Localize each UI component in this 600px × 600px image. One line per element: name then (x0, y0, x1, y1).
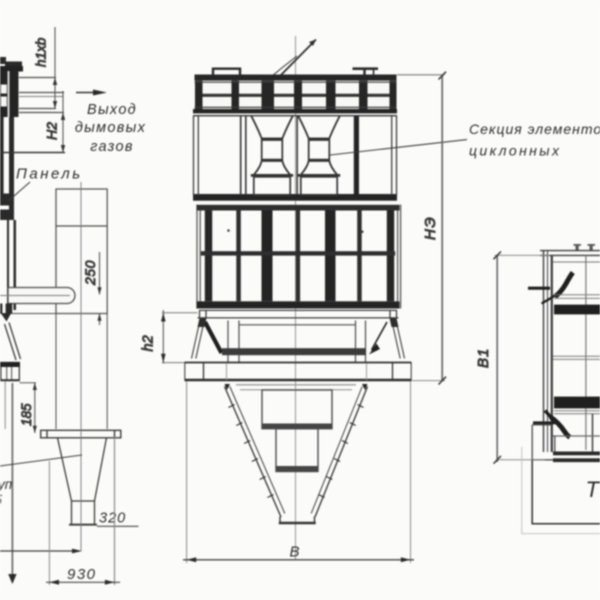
svg-text:В1: В1 (475, 348, 492, 368)
svg-text:Выход: Выход (87, 102, 137, 118)
svg-text:930: 930 (67, 566, 97, 583)
svg-text:Секция элементов: Секция элементов (469, 121, 600, 137)
svg-text:H2: H2 (44, 122, 60, 140)
svg-text:Т: Т (586, 477, 600, 502)
svg-text:h1xb: h1xb (34, 37, 49, 67)
svg-text:Панель: Панель (16, 166, 83, 183)
svg-text:h2: h2 (141, 335, 157, 351)
svg-text:В: В (290, 544, 300, 561)
svg-text:250: 250 (82, 260, 98, 286)
svg-text:320: 320 (99, 511, 126, 527)
svg-text:руп: руп (0, 477, 13, 492)
svg-text:дымовых: дымовых (75, 120, 146, 136)
svg-text:НЭ: НЭ (422, 216, 439, 240)
svg-text:циклонных: циклонных (469, 143, 561, 159)
svg-text:газов: газов (90, 139, 133, 155)
svg-text:185: 185 (19, 403, 34, 426)
